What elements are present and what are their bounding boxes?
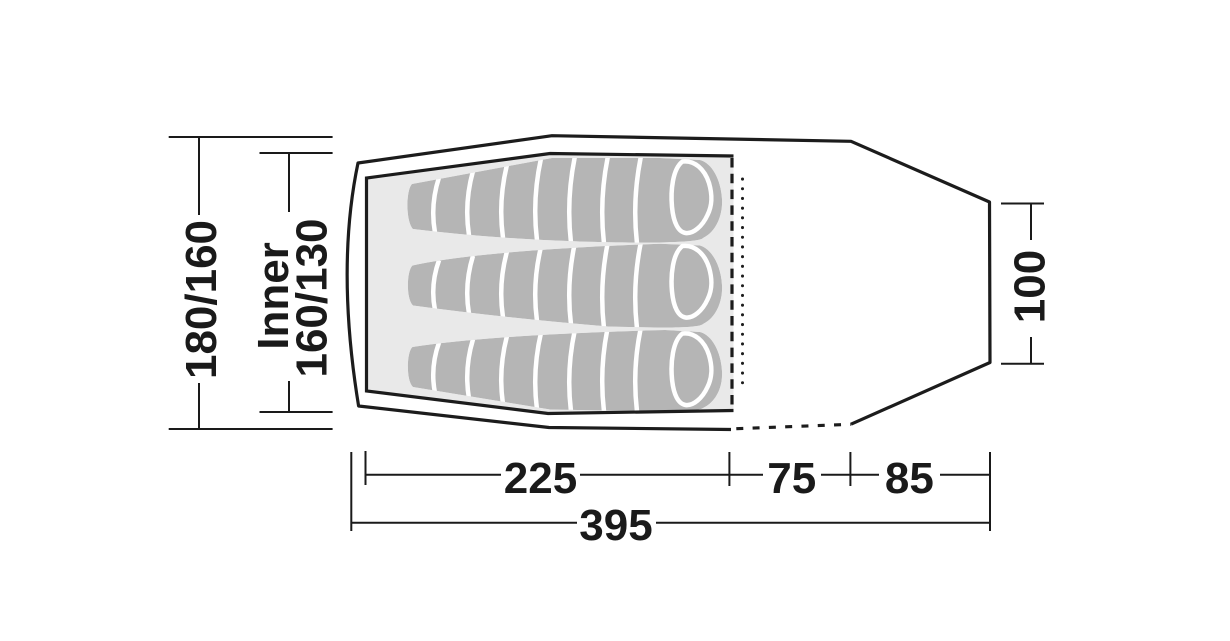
svg-text:75: 75 <box>767 454 816 503</box>
svg-text:100: 100 <box>1006 250 1055 323</box>
svg-text:180/160: 180/160 <box>177 220 226 379</box>
svg-text:160/130: 160/130 <box>288 218 337 377</box>
svg-text:225: 225 <box>504 454 577 503</box>
svg-text:85: 85 <box>885 454 934 503</box>
svg-text:395: 395 <box>579 501 652 550</box>
